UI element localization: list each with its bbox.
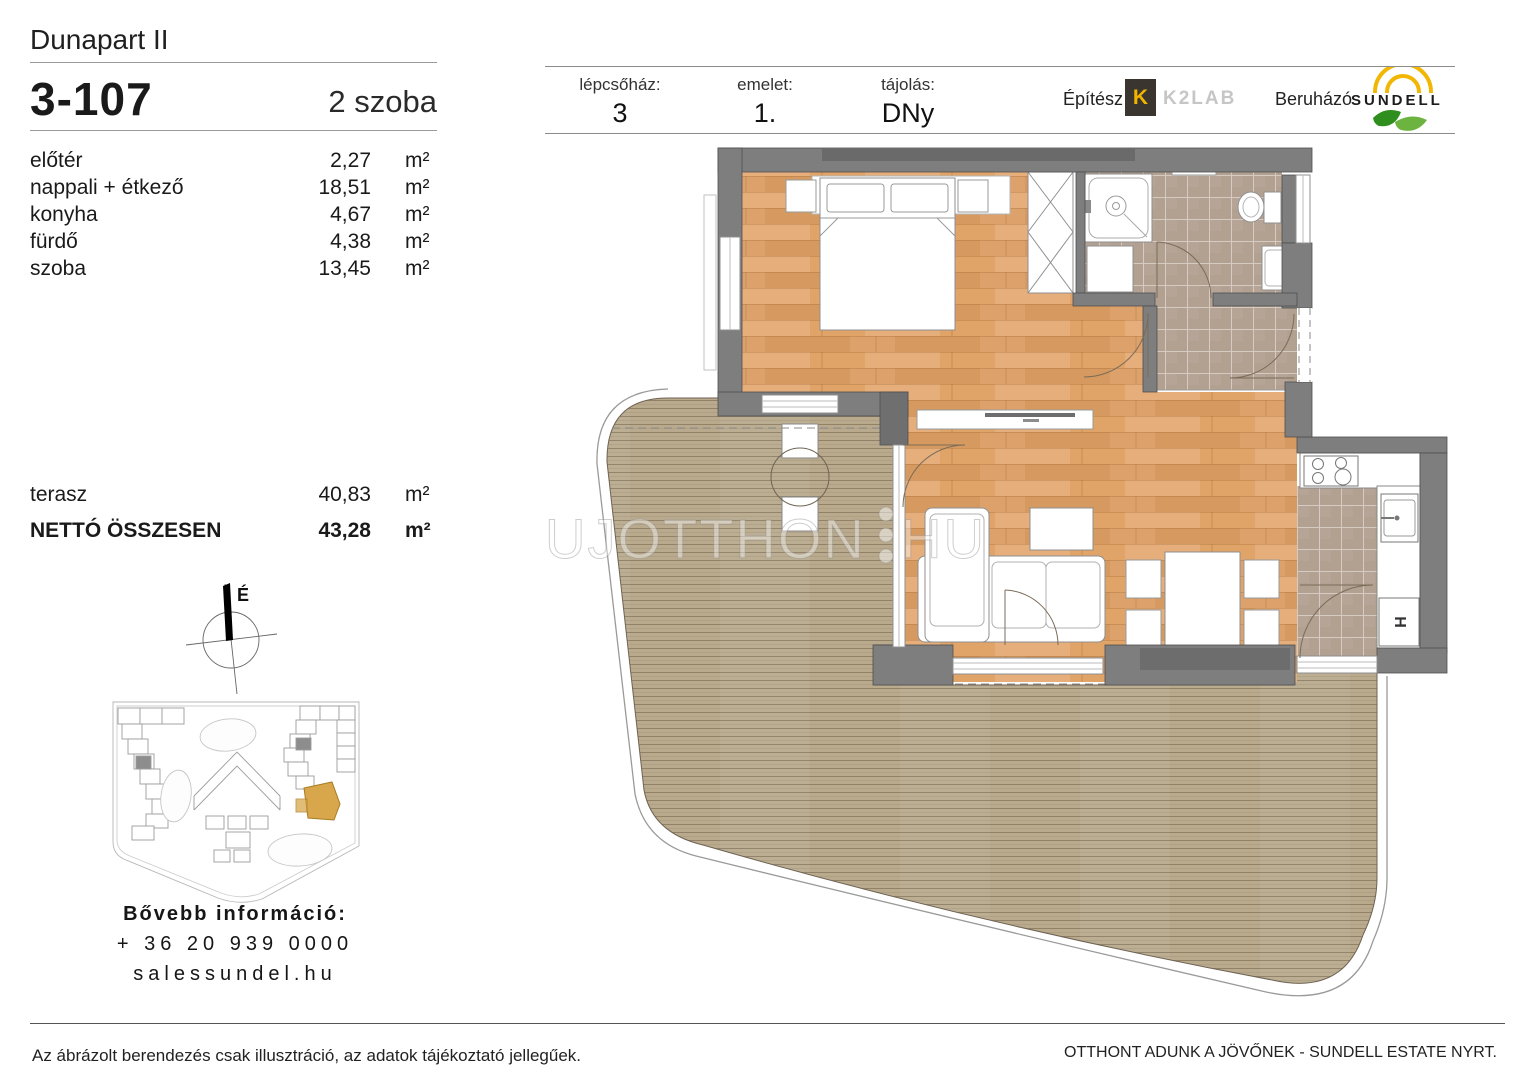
- kitchen-window: [1297, 656, 1377, 673]
- facade-glass-strip: [704, 195, 716, 370]
- floorplan-page: Dunapart II 3-107 2 szoba előtér 2,27 m²…: [0, 0, 1527, 1080]
- wall-bedroom-bath: [1076, 172, 1085, 293]
- compass-needle-icon: [223, 583, 233, 641]
- entry-floor: [1155, 293, 1297, 390]
- tv-stand-icon: [1023, 419, 1039, 422]
- fridge-label: H: [1391, 616, 1408, 628]
- watermark-dot: [879, 549, 893, 563]
- dining-chair: [1244, 610, 1279, 648]
- tv-cabinet: [917, 410, 1093, 429]
- dining-table: [1165, 552, 1240, 650]
- wall-kitchen-bottom: [1377, 648, 1447, 673]
- dining-chair: [1126, 610, 1161, 648]
- watermark: UJOTTHON HU: [545, 507, 986, 570]
- wall-kitchen-right: [1420, 453, 1447, 653]
- wall-living-bottom-dark: [1140, 648, 1290, 670]
- living-sliding-door: [953, 658, 1103, 674]
- wall-living-bottom-left: [873, 645, 953, 685]
- watermark-text-left: UJOTTHON: [545, 507, 866, 570]
- site-building-right-wing: [284, 706, 355, 789]
- compass-north-label: É: [237, 584, 249, 605]
- wall-entry-right-inner: [1282, 175, 1296, 243]
- dining-chair: [1126, 560, 1161, 598]
- site-map: [113, 702, 359, 902]
- coffee-table: [1030, 508, 1093, 550]
- dining-chair: [1244, 560, 1279, 598]
- bedroom-terrace-door: [762, 395, 838, 413]
- wall-bath-bottom-right: [1213, 293, 1297, 306]
- wall-bedroom-entry: [1143, 306, 1157, 392]
- wall-corner-block: [880, 392, 908, 445]
- wall-bath-bottom-left: [1073, 293, 1155, 306]
- site-courtyard: [198, 716, 257, 754]
- site-highlighted-unit[interactable]: [304, 782, 340, 820]
- watermark-text-right: HU: [901, 507, 986, 570]
- wall-top-dark: [822, 148, 1135, 161]
- watermark-dot: [879, 507, 893, 521]
- terrace-chair: [782, 424, 818, 458]
- shower-drain: [1106, 196, 1126, 216]
- shower-mixer-icon: [1085, 200, 1091, 213]
- nightstand: [786, 180, 816, 212]
- site-courtyard: [267, 832, 333, 868]
- washing-machine: [1087, 246, 1133, 292]
- wall-entry-right-lower: [1285, 382, 1312, 437]
- pillow: [827, 184, 884, 212]
- tv-icon: [985, 413, 1075, 417]
- wall-kitchen-top: [1297, 437, 1447, 453]
- nightstand: [958, 180, 988, 212]
- kitchen-tap-dot: [1395, 516, 1400, 521]
- wardrobe: [1028, 172, 1073, 293]
- compass: É: [186, 583, 277, 694]
- site-highlighted-unit-tail: [296, 799, 307, 812]
- pillow: [891, 184, 948, 212]
- floor-plan-drawing: H: [0, 0, 1527, 1080]
- watermark-dot: [879, 528, 893, 542]
- toilet-tank: [1264, 192, 1281, 223]
- kitchen-floor: [1297, 486, 1377, 660]
- site-building-center: [194, 752, 280, 862]
